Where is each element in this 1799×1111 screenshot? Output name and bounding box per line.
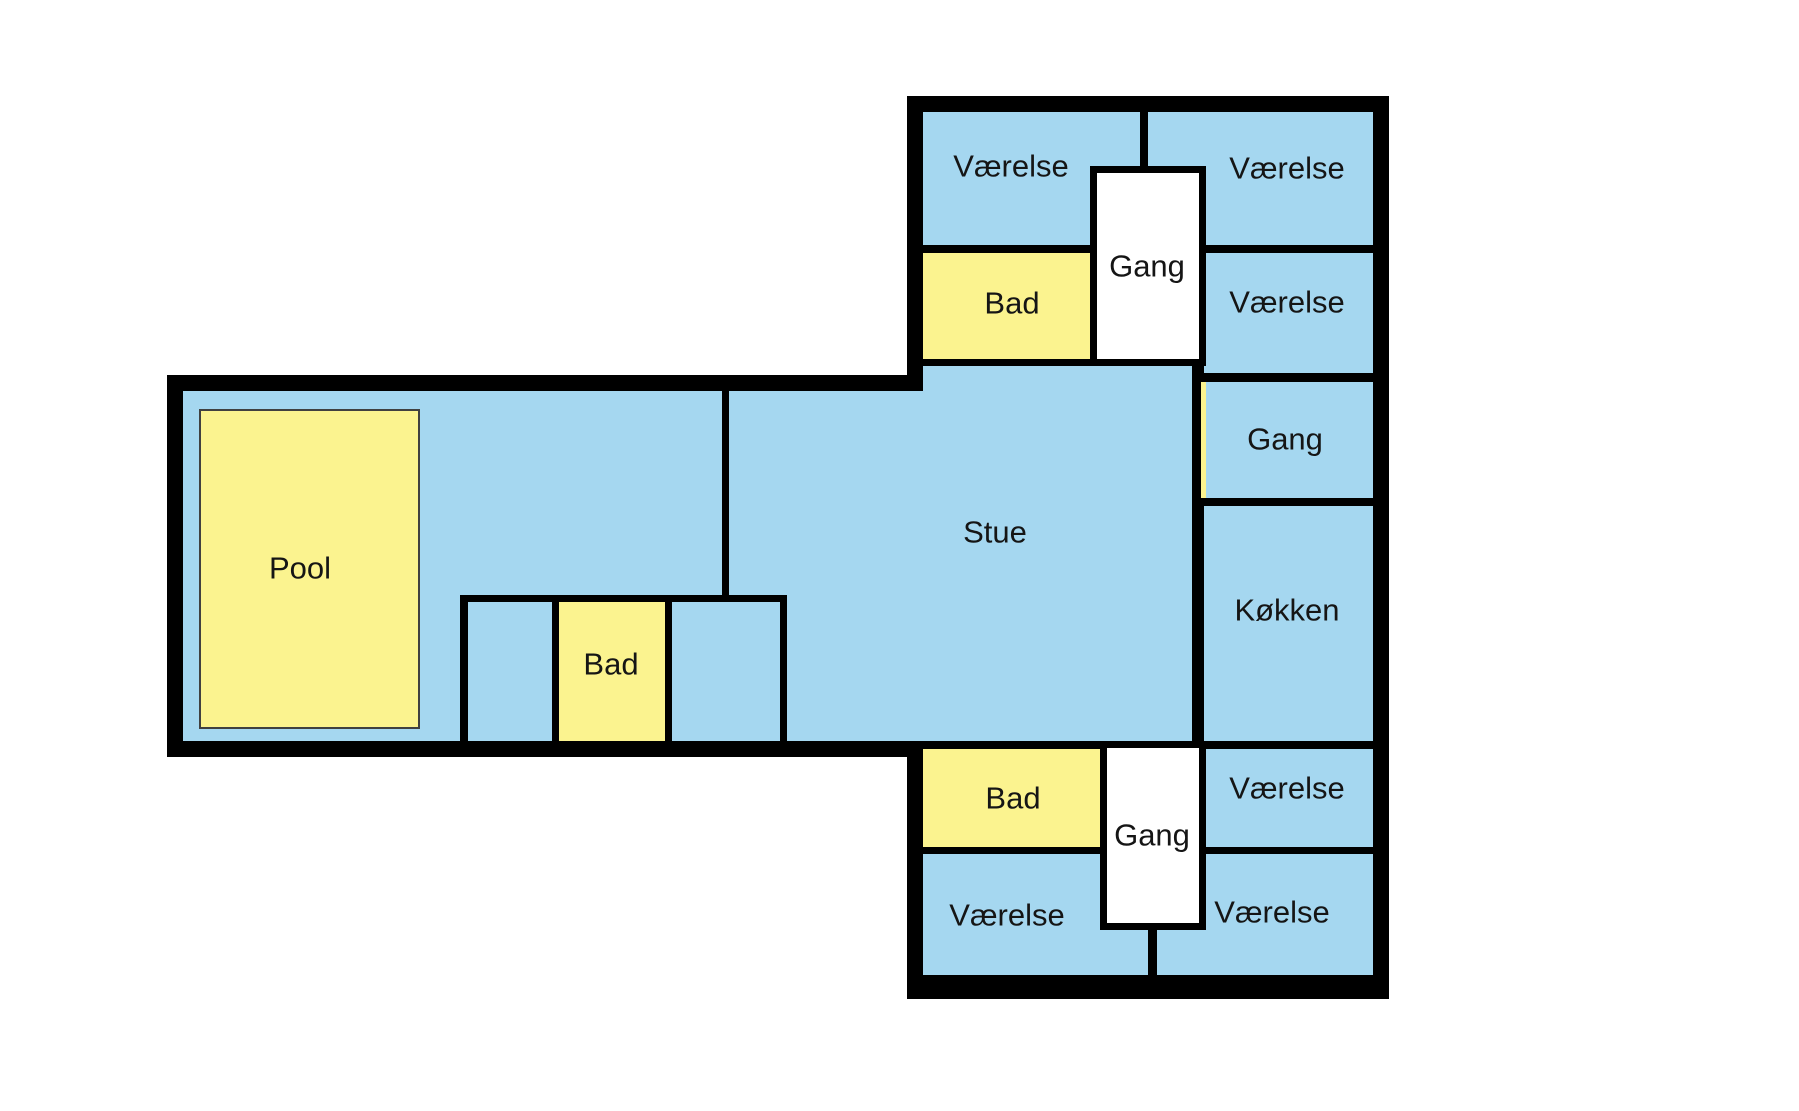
label-gang-bottom: Gang bbox=[1114, 818, 1190, 853]
wall-cluster-mid-east bbox=[665, 602, 672, 741]
wall-cluster-mid-west bbox=[552, 602, 559, 741]
label-stue: Stue bbox=[963, 515, 1027, 550]
label-vaerelse-east-mid: Værelse bbox=[1229, 771, 1344, 806]
wall-westwing-vertical bbox=[722, 391, 729, 602]
floorplan-page: VærelseVærelseBadGangVærelseGangKøkkenSt… bbox=[0, 0, 1799, 1111]
label-bad-top: Bad bbox=[984, 286, 1039, 321]
floorplan: VærelseVærelseBadGangVærelseGangKøkkenSt… bbox=[0, 0, 1799, 1111]
wall-koekken-south bbox=[1204, 741, 1373, 749]
wall-vaerelse-east-south bbox=[1204, 847, 1373, 854]
wall-bad-top-south bbox=[923, 359, 1092, 366]
wall-cluster-east bbox=[780, 595, 787, 741]
label-vaerelse-bottom-west: Værelse bbox=[949, 898, 1064, 933]
wall-stue-south bbox=[923, 741, 1100, 749]
label-vaerelse-bottom-east: Værelse bbox=[1214, 895, 1329, 930]
wall-gang-east-south bbox=[1204, 498, 1373, 506]
wall-bottom-vaerelse-divider bbox=[1148, 923, 1157, 975]
label-vaerelse-top-east: Værelse bbox=[1229, 151, 1344, 186]
label-pool: Pool bbox=[269, 551, 331, 586]
wall-gang-east-north bbox=[1204, 373, 1373, 382]
wall-cluster-west bbox=[460, 595, 468, 741]
label-gang-east: Gang bbox=[1247, 422, 1323, 457]
wall-top-vaerelse-divider bbox=[1140, 112, 1148, 172]
rooms-and-walls bbox=[167, 96, 1389, 999]
label-koekken: Køkken bbox=[1234, 593, 1339, 628]
wall-cluster-north bbox=[460, 595, 787, 602]
label-vaerelse-top-west: Værelse bbox=[953, 149, 1068, 184]
sliver-gang-east-edge bbox=[1201, 382, 1206, 498]
label-vaerelse-east-second: Værelse bbox=[1229, 285, 1344, 320]
label-bad-west: Bad bbox=[583, 647, 638, 682]
label-bad-bottom: Bad bbox=[985, 781, 1040, 816]
label-gang-top: Gang bbox=[1109, 249, 1185, 284]
wall-bad-bottom-south bbox=[923, 847, 1100, 854]
